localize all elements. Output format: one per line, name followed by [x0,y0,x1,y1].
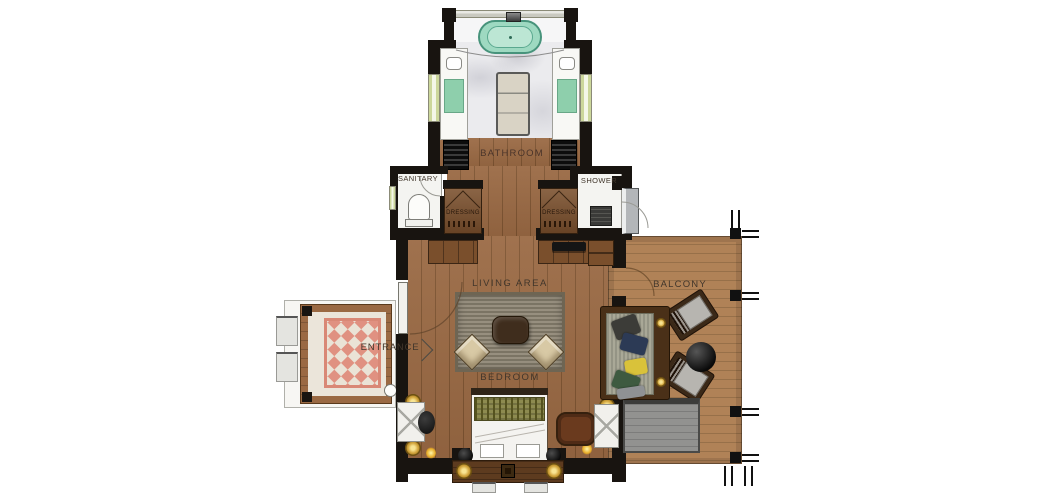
wall [302,392,312,402]
console-medallion [546,463,562,479]
bedroom-step [472,482,496,493]
daybed-lamp [656,318,666,328]
rail [738,210,740,228]
wall [564,458,614,474]
wall [390,166,448,174]
rail [731,210,733,228]
balcony-label: BALCONY [648,280,712,290]
entrance-step [276,352,298,382]
rail [744,466,746,486]
outdoor-counter [588,240,614,266]
tv [552,242,586,251]
bathtub [478,20,542,54]
bathroom-label: BATHROOM [452,149,572,159]
rail [742,298,759,300]
railing-post [730,452,741,463]
ceiling-light [405,440,421,456]
rail [742,408,759,410]
console-medallion [456,463,472,479]
dressing-left-label: DRESSING [445,210,481,216]
balcony-table [686,342,716,372]
wall-sconce [426,447,436,459]
bed [471,388,548,462]
rail [742,292,759,294]
rail [742,460,759,462]
entrance-rug [324,318,381,388]
bedroom-label: BEDROOM [457,373,563,383]
desk-chair [418,411,435,434]
railing-post [730,290,741,301]
green-towel [444,79,464,113]
shower-mat [590,206,612,226]
bathroom-window-left [428,74,440,122]
bathtub-drain [509,36,512,39]
vanity-right [552,48,580,140]
rail [742,414,759,416]
dresser [428,240,478,264]
entrance-door [398,282,408,334]
wall [408,458,454,474]
floor-plan: BATHROOM SANITARY SHOWER DRESSING DRESSI… [0,0,1047,503]
bed-blanket [474,397,545,421]
rail [751,466,753,486]
wall [396,230,408,280]
railing-post [730,228,741,239]
sanitary-label: SANITARY [394,175,442,183]
sink [559,57,575,70]
entrance-rug-pattern [324,318,381,388]
wall [428,122,440,172]
rail [742,230,759,232]
vanity-left [440,48,468,140]
rail [742,454,759,456]
wall [580,122,592,172]
railing-post [730,406,741,417]
daybed-pillow [616,385,645,400]
entrance-step [276,316,298,346]
shower-label: SHOWER [577,177,621,185]
sink [446,57,462,70]
sanitary-window [389,186,396,210]
armchair-brown [556,412,596,446]
toilet-tank [405,219,433,227]
rail [724,466,726,486]
wall [612,230,626,268]
tub-caddy [506,12,521,22]
coffee-table [492,316,529,344]
dressing-right-label: DRESSING [541,210,577,216]
bedroom-step [524,482,548,493]
bed-pillow [480,444,504,458]
headboard [471,388,548,395]
bathroom-window-right [580,74,592,122]
wall [580,40,592,74]
hanger-rail [448,221,478,227]
rail [742,236,759,238]
toilet [408,194,430,220]
green-towel [557,79,577,113]
console-ornament [501,464,515,478]
wall [302,306,312,316]
bed-pillow [516,444,540,458]
outdoor-shower-panel [622,188,639,234]
bathroom-island [496,72,530,136]
hanger-rail [544,221,574,227]
rail [731,466,733,486]
balcony-mat [623,398,700,453]
daybed-lamp [656,377,666,387]
living-area-label: LIVING AREA [455,279,565,289]
luggage-rack [594,404,619,448]
wall [428,40,440,74]
